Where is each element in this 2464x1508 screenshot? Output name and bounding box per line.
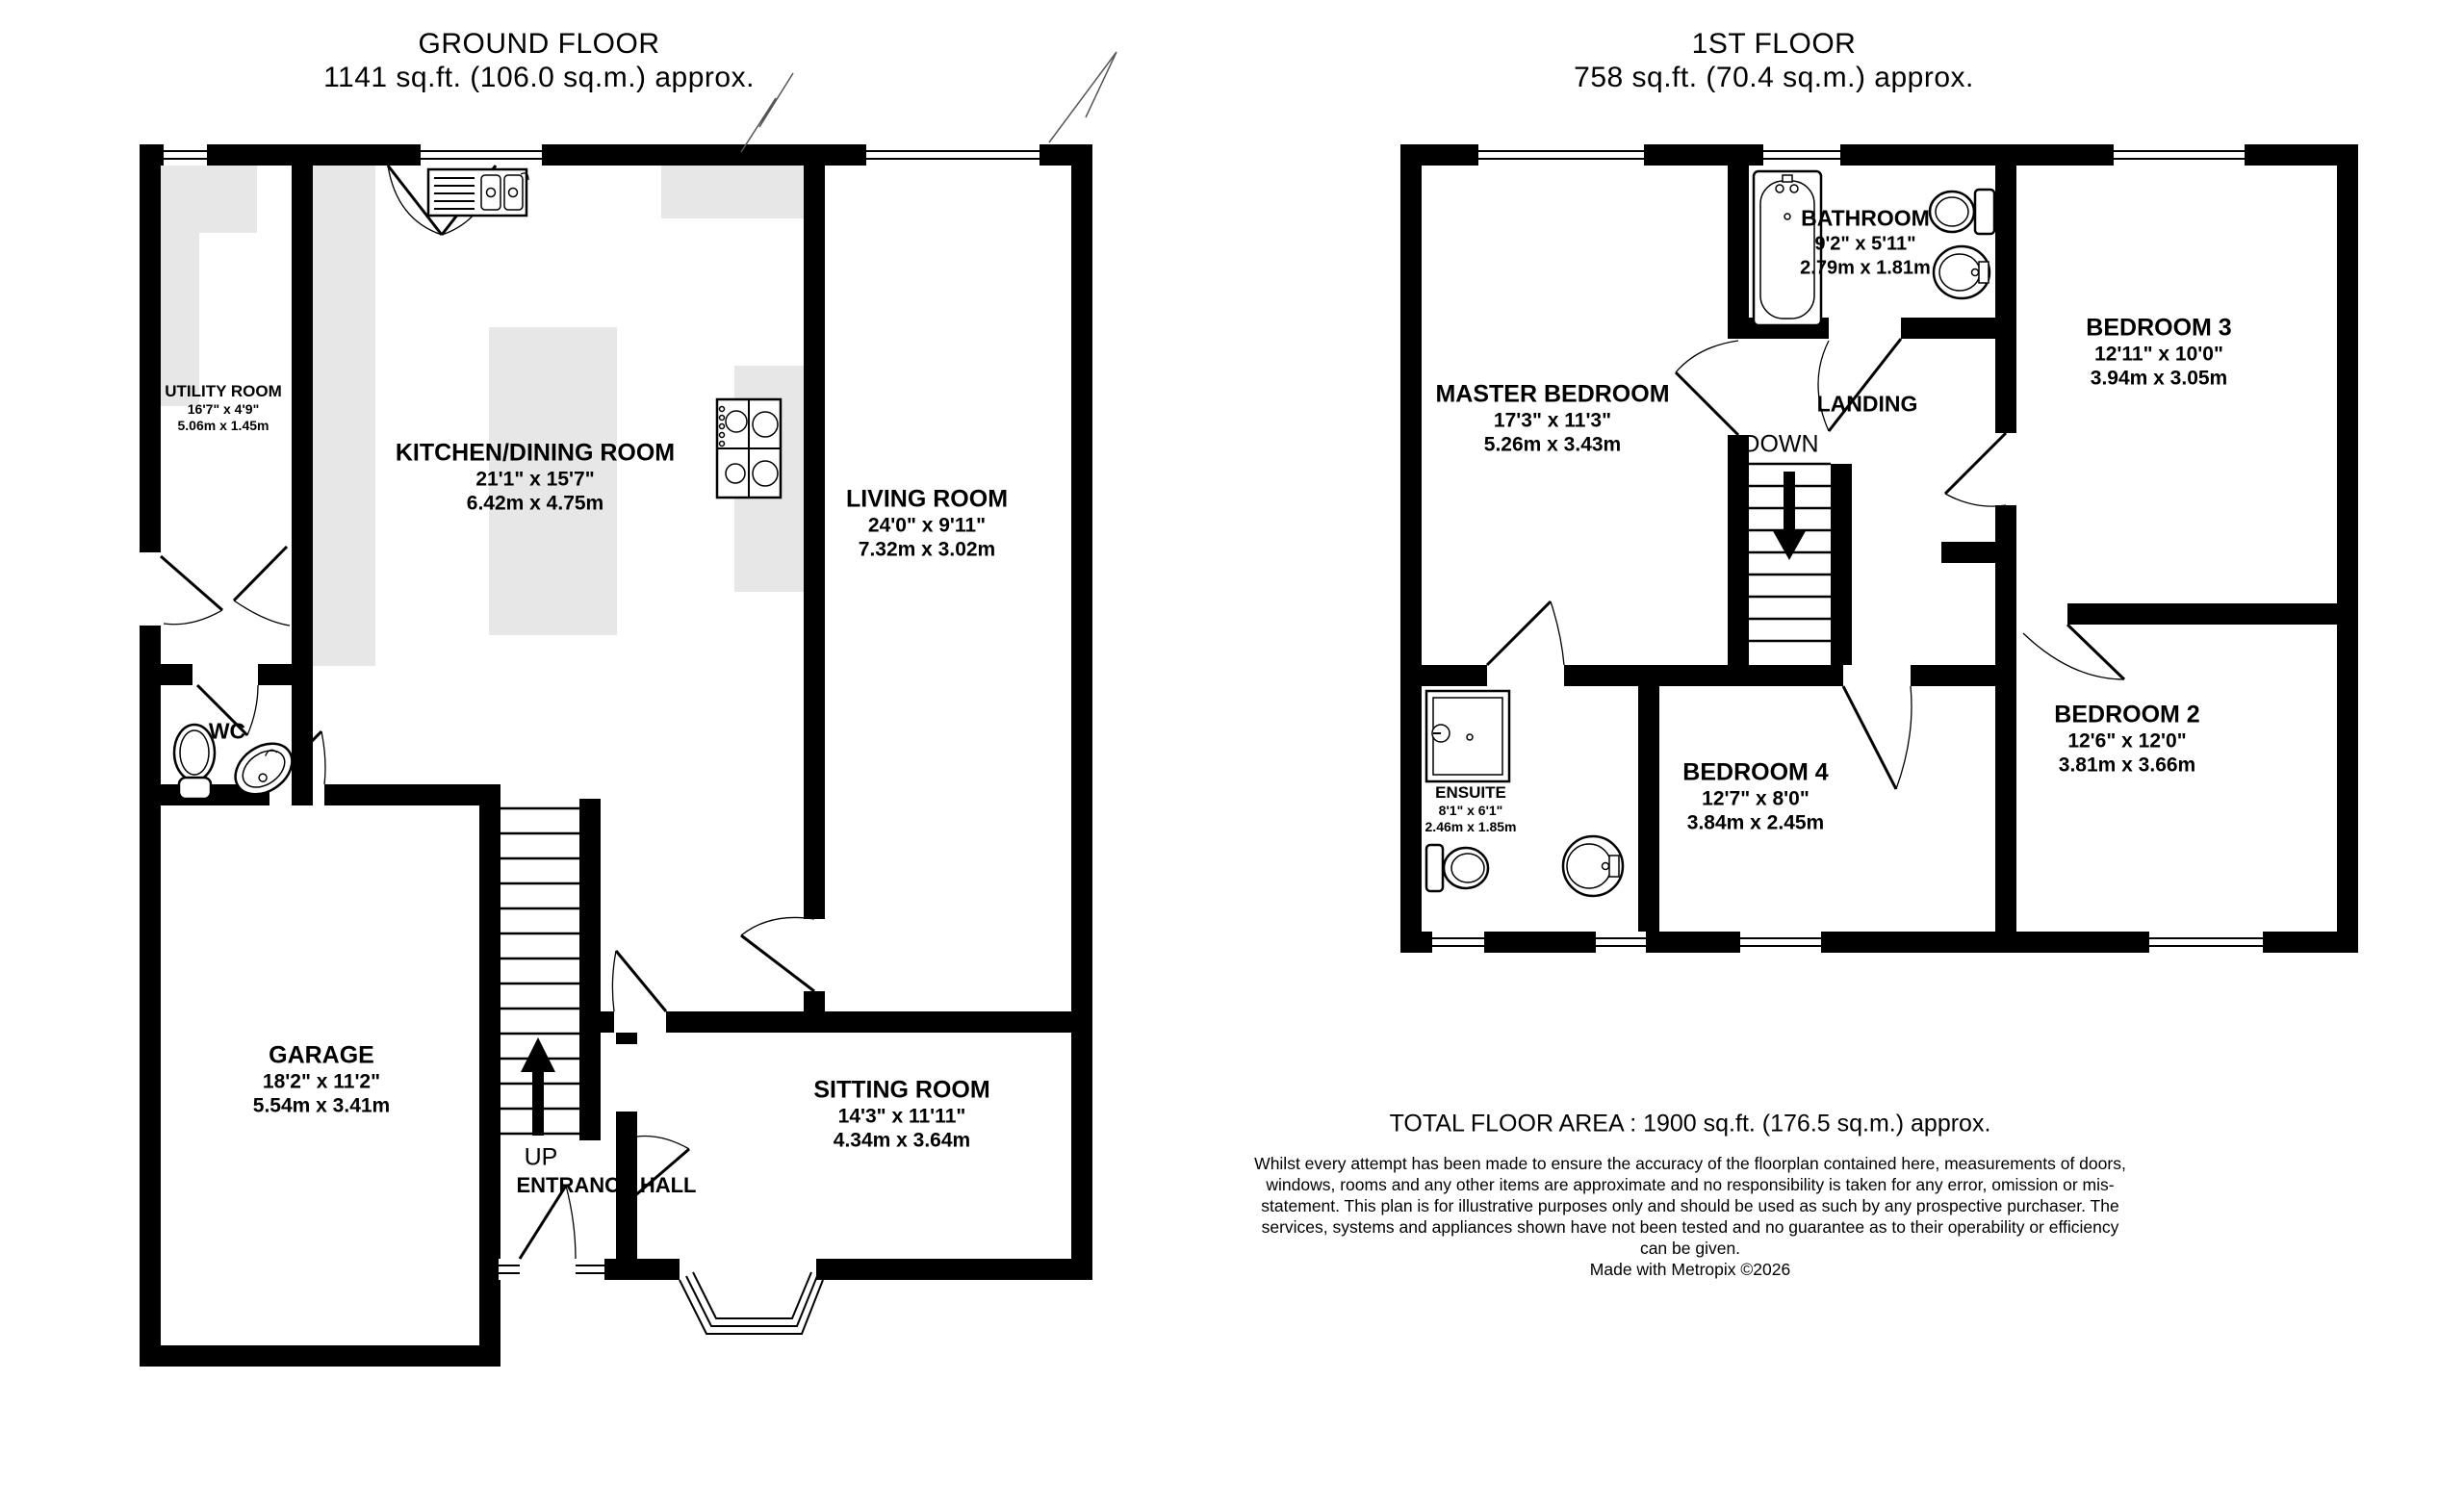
ground-floor-title: GROUND FLOOR 1141 sq.ft. (106.0 sq.m.) a… (323, 27, 755, 94)
room-dims-metric: 3.94m x 3.05m (2086, 367, 2231, 391)
ground-floor-subtitle: 1141 sq.ft. (106.0 sq.m.) approx. (323, 61, 755, 94)
room-dims-imperial: 24'0" x 9'11" (846, 514, 1008, 538)
room-name: BEDROOM 4 (1682, 759, 1828, 787)
staircase-up (500, 808, 579, 1136)
room-dims-imperial: 17'3" x 11'3" (1435, 409, 1669, 433)
first-floor-subtitle: 758 sq.ft. (70.4 sq.m.) approx. (1574, 61, 1974, 94)
room-name: MASTER BEDROOM (1435, 381, 1669, 409)
kitchen-sink-icon (428, 169, 528, 216)
room-label-landing: LANDING (1817, 392, 1918, 418)
room-name: GARAGE (253, 1042, 390, 1070)
bathroom-toilet-icon (1930, 190, 1994, 234)
room-label-garage: GARAGE 18'2" x 11'2" 5.54m x 3.41m (253, 1042, 390, 1118)
ground-floor-plan (140, 52, 1116, 1367)
room-label-bedroom3: BEDROOM 3 12'11" x 10'0" 3.94m x 3.05m (2086, 315, 2231, 391)
bathroom-basin-icon (1934, 246, 1989, 298)
room-dims-imperial: 12'7" x 8'0" (1682, 787, 1828, 811)
metropix-credit: Made with Metropix ©2026 (1590, 1260, 1790, 1279)
room-dims-metric: 7.32m x 3.02m (846, 538, 1008, 562)
room-dims-metric: 3.81m x 3.66m (2054, 754, 2199, 778)
room-dims-metric: 5.54m x 3.41m (253, 1094, 390, 1118)
room-label-bedroom2: BEDROOM 2 12'6" x 12'0" 3.81m x 3.66m (2054, 702, 2199, 778)
room-name: LIVING ROOM (846, 486, 1008, 514)
room-dims-imperial: 9'2" x 5'11" (1800, 233, 1931, 257)
room-dims-metric: 5.26m x 3.43m (1435, 433, 1669, 457)
ensuite-basin-icon (1563, 836, 1623, 896)
room-name: BEDROOM 3 (2086, 315, 2231, 343)
room-dims-imperial: 12'6" x 12'0" (2054, 729, 2199, 754)
room-label-ensuite: ENSUITE 8'1" x 6'1" 2.46m x 1.85m (1425, 783, 1517, 835)
staircase-down (1749, 464, 1831, 641)
total-floor-area: TOTAL FLOOR AREA : 1900 sq.ft. (176.5 sq… (1390, 1111, 1991, 1138)
room-name: SITTING ROOM (813, 1077, 989, 1105)
room-dims-imperial: 12'11" x 10'0" (2086, 343, 2231, 367)
room-label-kitchen: KITCHEN/DINING ROOM 21'1" x 15'7" 6.42m … (396, 440, 675, 516)
room-dims-metric: 2.79m x 1.81m (1800, 257, 1931, 281)
room-name: BATHROOM (1800, 205, 1931, 233)
room-dims-imperial: 21'1" x 15'7" (396, 468, 675, 492)
disclaimer-text: Whilst every attempt has been made to en… (1254, 1154, 2126, 1258)
room-label-bathroom: BATHROOM 9'2" x 5'11" 2.79m x 1.81m (1800, 205, 1931, 281)
first-floor-title-line: 1ST FLOOR (1574, 27, 1974, 61)
bay-window (672, 1259, 824, 1334)
room-dims-imperial: 16'7" x 4'9" (165, 401, 282, 418)
ensuite-toilet-icon (1426, 845, 1488, 891)
room-name: KITCHEN/DINING ROOM (396, 440, 675, 468)
stairs-down-label: DOWN (1742, 431, 1818, 459)
room-label-living: LIVING ROOM 24'0" x 9'11" 7.32m x 3.02m (846, 486, 1008, 562)
room-dims-imperial: 8'1" x 6'1" (1425, 803, 1517, 819)
room-label-wc: WC (209, 719, 245, 745)
shower-icon (1426, 691, 1509, 781)
ground-floor-title-line: GROUND FLOOR (323, 27, 755, 61)
room-label-entrance-hall: ENTRANCE HALL (517, 1173, 697, 1198)
room-name: BEDROOM 2 (2054, 702, 2199, 729)
opening-mark-icon (1049, 52, 1116, 142)
disclaimer: Whilst every attempt has been made to en… (1247, 1153, 2133, 1280)
stairs-up-label: UP (525, 1144, 558, 1172)
room-dims-metric: 2.46m x 1.85m (1425, 819, 1517, 835)
room-label-master: MASTER BEDROOM 17'3" x 11'3" 5.26m x 3.4… (1435, 381, 1669, 457)
up-arrow-icon (521, 1037, 555, 1136)
room-dims-imperial: 14'3" x 11'11" (813, 1105, 989, 1129)
room-name: UTILITY ROOM (165, 382, 282, 401)
room-name: ENSUITE (1425, 783, 1517, 803)
room-dims-metric: 3.84m x 2.45m (1682, 811, 1828, 835)
room-label-bedroom4: BEDROOM 4 12'7" x 8'0" 3.84m x 2.45m (1682, 759, 1828, 835)
room-label-utility: UTILITY ROOM 16'7" x 4'9" 5.06m x 1.45m (165, 382, 282, 434)
room-dims-imperial: 18'2" x 11'2" (253, 1070, 390, 1094)
first-floor-title: 1ST FLOOR 758 sq.ft. (70.4 sq.m.) approx… (1574, 27, 1974, 94)
room-label-sitting: SITTING ROOM 14'3" x 11'11" 4.34m x 3.64… (813, 1077, 989, 1153)
room-dims-metric: 4.34m x 3.64m (813, 1129, 989, 1153)
room-dims-metric: 5.06m x 1.45m (165, 418, 282, 434)
hob-icon (717, 399, 781, 498)
room-dims-metric: 6.42m x 4.75m (396, 492, 675, 516)
